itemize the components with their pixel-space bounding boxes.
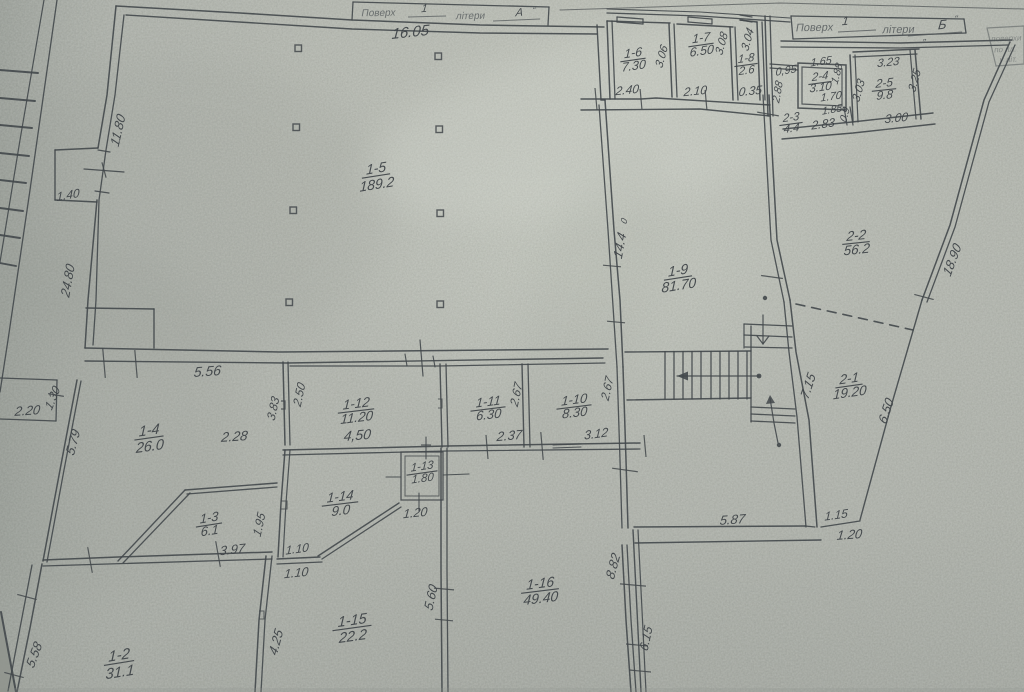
svg-text:2.6: 2.6 [737, 63, 755, 79]
svg-text:2.37: 2.37 [495, 427, 523, 444]
svg-text:3.23: 3.23 [877, 55, 901, 70]
svg-text:А: А [514, 7, 524, 20]
svg-text:1.20: 1.20 [836, 526, 864, 543]
svg-text:6.1: 6.1 [201, 521, 219, 539]
svg-text:3.97: 3.97 [219, 541, 246, 559]
svg-text:поверхи: поверхи [991, 33, 1023, 43]
svg-text:5.87: 5.87 [719, 511, 747, 528]
svg-text:4.4: 4.4 [783, 121, 800, 136]
svg-text:літери: літери [881, 24, 915, 36]
svg-text:2.10: 2.10 [682, 83, 708, 100]
svg-text:Поверх: Поверх [361, 8, 397, 20]
svg-text:9.0: 9.0 [331, 502, 351, 519]
svg-text:2.28: 2.28 [220, 428, 249, 445]
svg-text:2.40: 2.40 [614, 82, 640, 99]
svg-text:5.56: 5.56 [193, 362, 222, 380]
svg-text:2.20: 2.20 [13, 402, 42, 419]
svg-text:1.10: 1.10 [284, 565, 309, 582]
svg-text:Поверх: Поверх [795, 22, 835, 35]
svg-text:літери: літери [455, 11, 486, 22]
svg-text:0.35: 0.35 [738, 83, 763, 100]
svg-text:1.20: 1.20 [403, 505, 428, 522]
svg-text:4,50: 4,50 [343, 426, 372, 444]
svg-text:9.8: 9.8 [876, 87, 894, 103]
svg-text:56.2: 56.2 [843, 241, 871, 259]
